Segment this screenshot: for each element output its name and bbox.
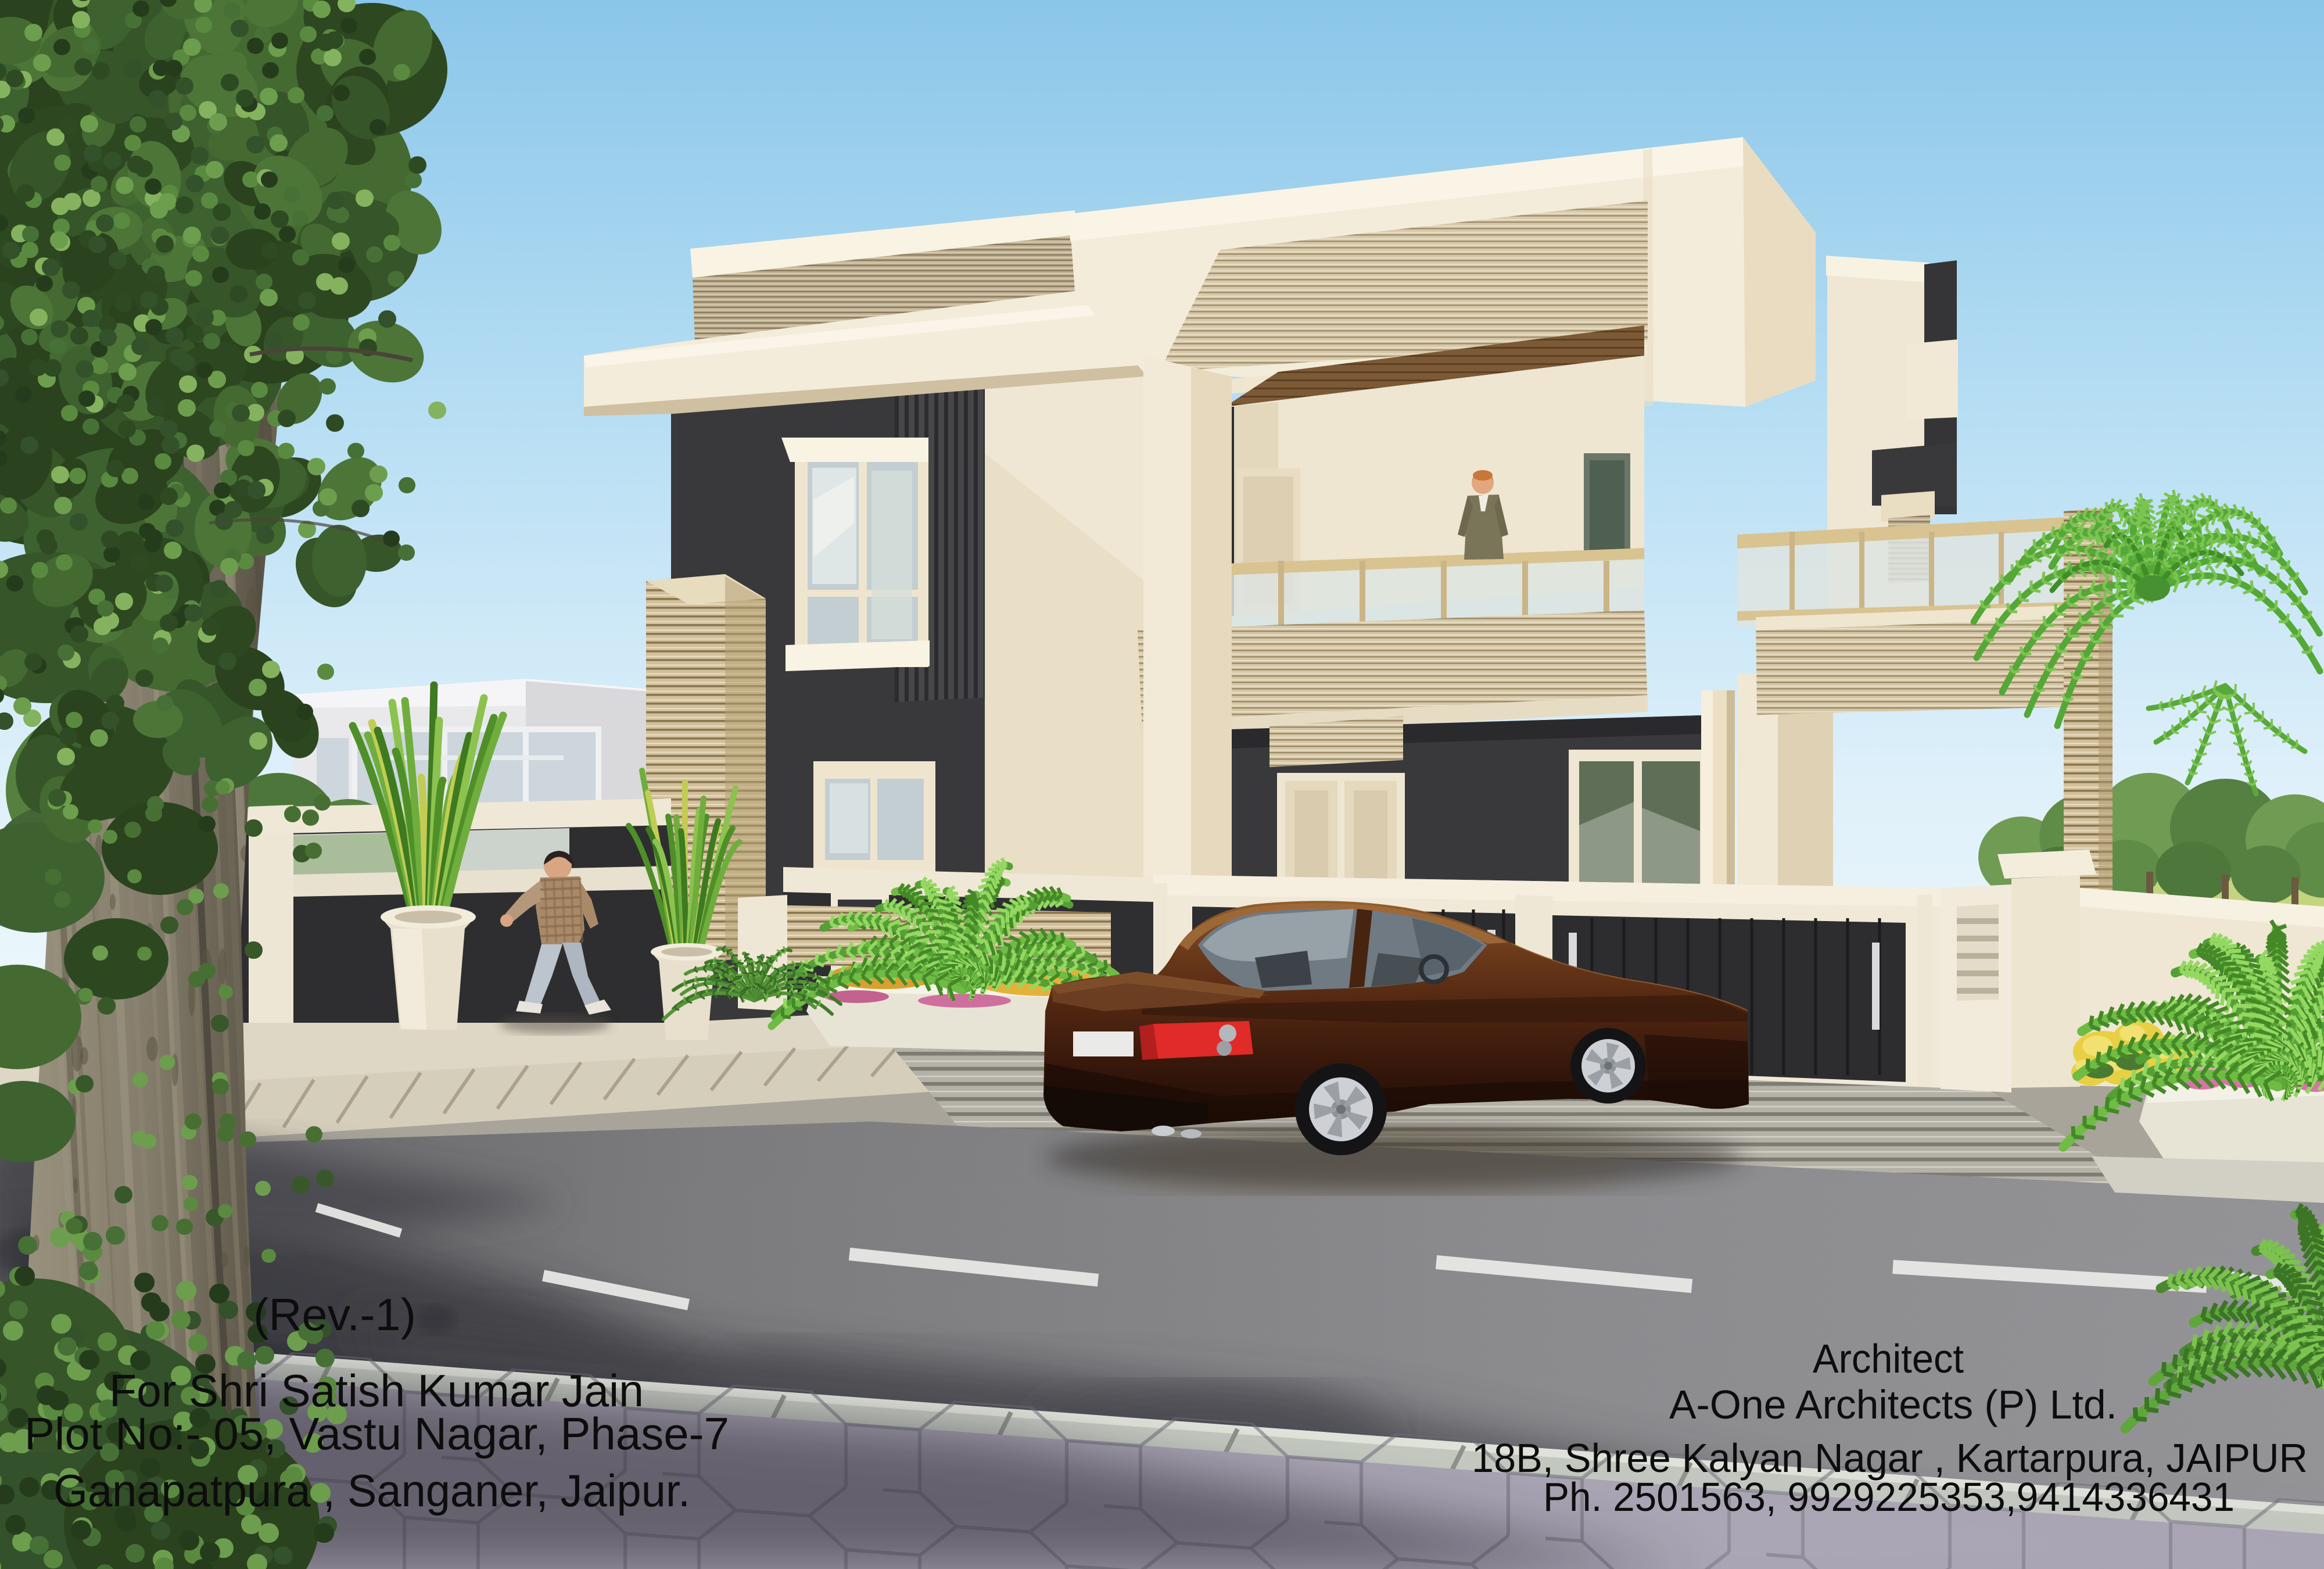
svg-text:Plot No:- 05, Vastu Nagar, Pha: Plot No:- 05, Vastu Nagar, Phase-7	[24, 1408, 729, 1459]
svg-text:Ganapatpura , Sanganer, Jaipur: Ganapatpura , Sanganer, Jaipur.	[53, 1465, 690, 1516]
svg-text:Ph. 2501563, 9929225353,941433: Ph. 2501563, 9929225353,9414336431	[1543, 1474, 2235, 1520]
svg-text:Architect: Architect	[1813, 1336, 1964, 1381]
svg-text:A-One Architects (P) Ltd.: A-One Architects (P) Ltd.	[1669, 1382, 2117, 1427]
svg-text:(Rev.-1): (Rev.-1)	[253, 1289, 416, 1340]
